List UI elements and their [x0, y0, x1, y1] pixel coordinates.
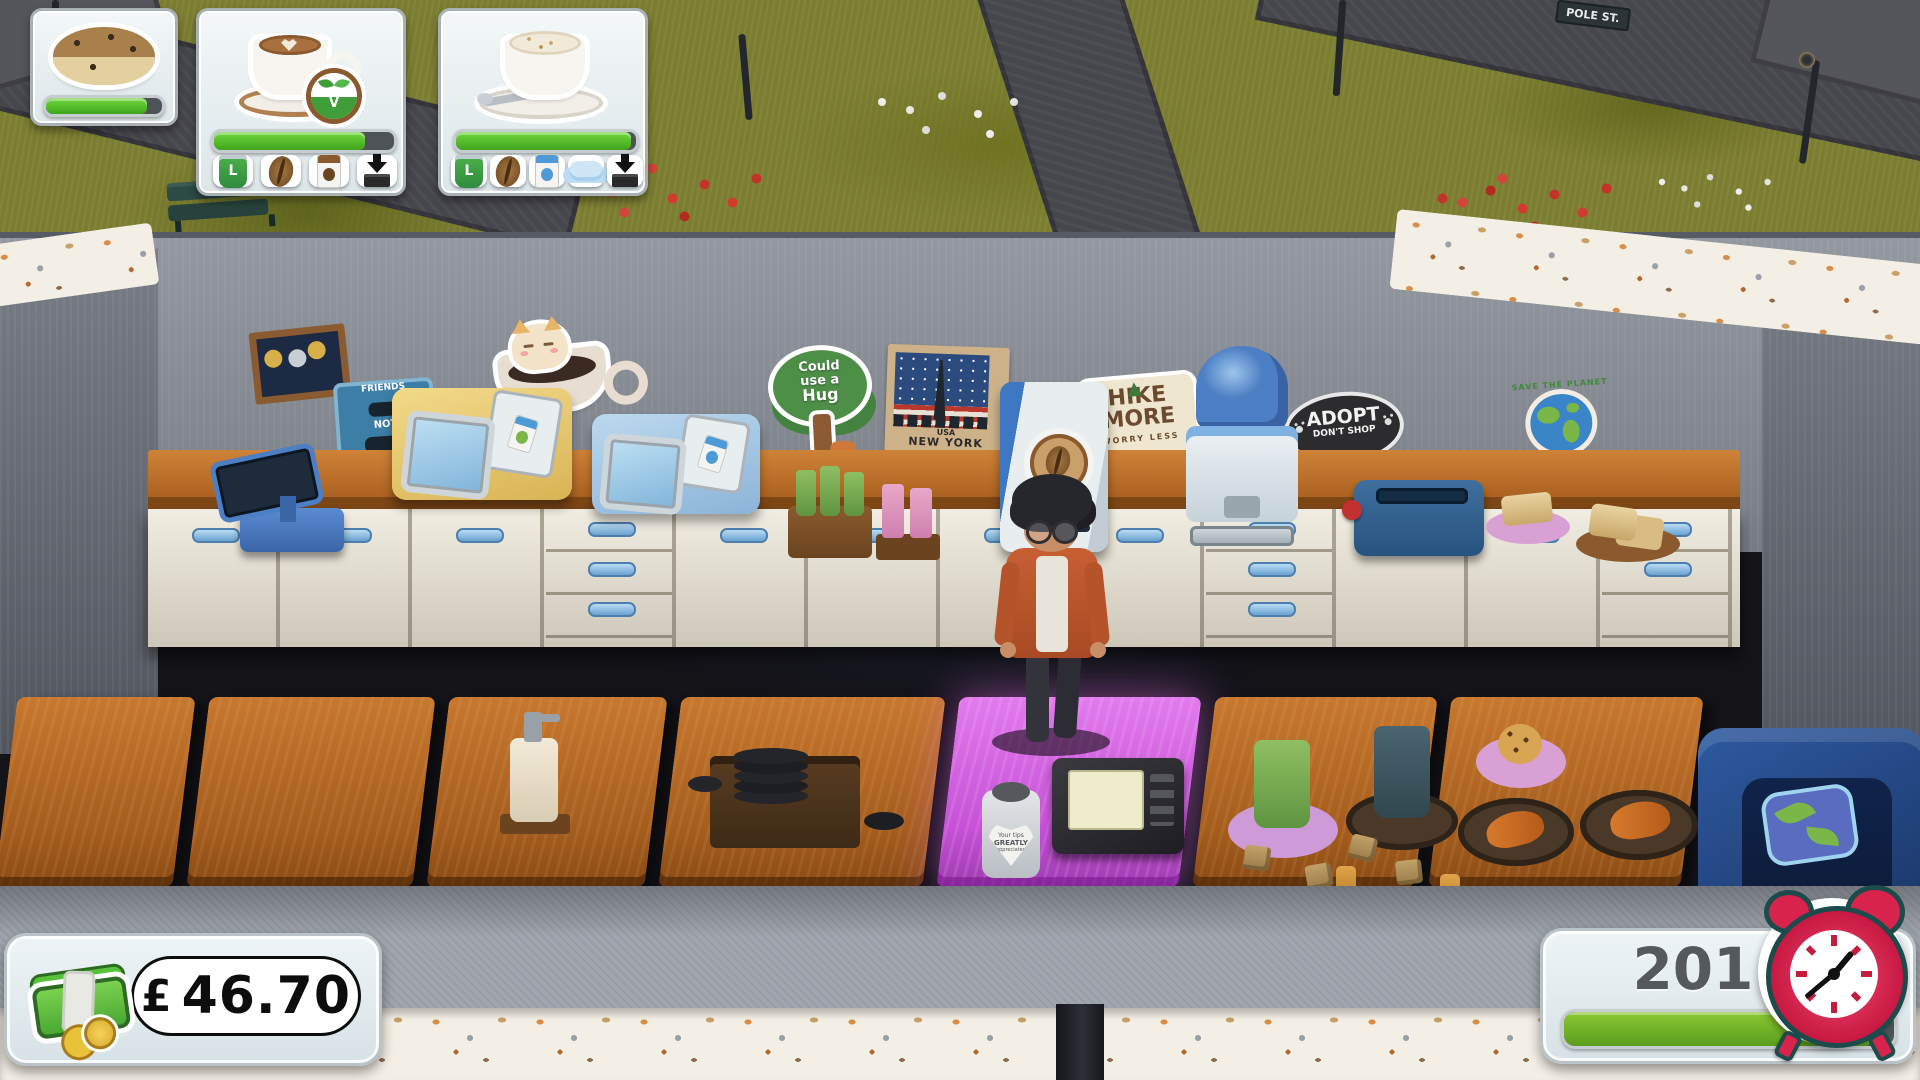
- hike-line2: MORE: [1102, 403, 1176, 434]
- lid-stack: [734, 748, 808, 764]
- flower-patch-right: [1438, 194, 1448, 204]
- fridge-window: [599, 433, 687, 516]
- fridge-window: [400, 410, 496, 501]
- loose-lid: [864, 812, 904, 830]
- lamp-head: [1799, 52, 1815, 68]
- ingredient-coffee-beans: [261, 155, 301, 187]
- drawer-handle: [1248, 602, 1296, 617]
- loose-lid: [688, 776, 722, 792]
- croissant-plate[interactable]: [1580, 778, 1698, 864]
- character-leg: [1053, 647, 1082, 738]
- compost-leaf-badge: [1759, 782, 1860, 868]
- bread-board[interactable]: [1576, 506, 1680, 564]
- game-screen: POLE ST. FRIENDS NOT FOOD Could use a Hu…: [0, 0, 1920, 1080]
- syrup-pump-bottle[interactable]: [498, 702, 572, 836]
- cup-size-letter: L: [229, 163, 238, 179]
- ingredient-milk: [529, 155, 565, 187]
- sandwich: [1501, 491, 1554, 526]
- ingredient-coffee-beans: [490, 155, 526, 187]
- character-hand: [1000, 642, 1016, 658]
- cabinet-handle: [1116, 528, 1164, 543]
- sugar-cube: [1242, 844, 1271, 871]
- globe: [1528, 392, 1594, 454]
- machine-arm: [280, 496, 296, 522]
- ingredient-milk-froth: [568, 155, 604, 187]
- ingredient-large-cup: L: [213, 155, 253, 187]
- pink-cups-rack[interactable]: [876, 478, 940, 564]
- dark-teal-cup: [1374, 726, 1430, 818]
- support-pole: [1056, 1004, 1104, 1080]
- clock-face: [1790, 930, 1878, 1018]
- leaf-icon: [318, 77, 334, 90]
- green-cup: [820, 466, 840, 516]
- money-sticker-icon: [17, 941, 140, 1055]
- order-progress-bar: [43, 95, 165, 117]
- daisy-patch-2: [1659, 179, 1665, 185]
- cabinet-handle: [456, 528, 504, 543]
- order-progress-bar: [211, 129, 397, 153]
- milk-bottle-icon: [507, 414, 540, 454]
- pink-cup: [882, 484, 904, 538]
- money-pill: £ 46.70: [131, 956, 361, 1036]
- lids-crate[interactable]: [688, 746, 908, 862]
- shop-left-wall: [0, 248, 158, 754]
- latte-image: V: [233, 21, 361, 121]
- barista-character: [984, 470, 1114, 760]
- toaster[interactable]: [1342, 470, 1484, 562]
- hug-tree-sticker: Could use a Hug: [765, 347, 883, 463]
- toaster-slots: [1376, 488, 1468, 504]
- croissant-plate[interactable]: [1458, 786, 1574, 870]
- order-progress-fill: [456, 132, 631, 150]
- milk-bottle-icon: [697, 434, 730, 474]
- crate-box: [710, 756, 860, 848]
- vegan-letter: V: [311, 97, 357, 110]
- currency-symbol: £: [141, 971, 172, 1022]
- group-head: [1224, 496, 1260, 518]
- drawer-handle: [588, 602, 636, 617]
- pink-cup: [910, 488, 932, 538]
- character-tee: [1036, 556, 1068, 652]
- scone-image: [53, 27, 155, 85]
- milk-fridge-yellow[interactable]: [392, 388, 572, 500]
- toaster-knob: [1342, 500, 1362, 520]
- character-glasses: [1026, 520, 1052, 544]
- money-display: £ 46.70: [4, 933, 382, 1066]
- bread-slices: [1588, 503, 1638, 541]
- green-cup: [1254, 740, 1310, 828]
- drawer-handle: [1644, 562, 1692, 577]
- pump-spout: [538, 714, 560, 722]
- order-card-1: [30, 8, 178, 126]
- sugar-cube: [1347, 833, 1378, 863]
- character-hand: [1090, 642, 1106, 658]
- order-card-3: L: [438, 8, 648, 196]
- clock-center: [1828, 968, 1840, 980]
- ingredient-oat-milk: [309, 155, 349, 187]
- glasses-bridge: [1048, 526, 1056, 529]
- cookie: [1498, 724, 1542, 764]
- bottle-body: [510, 738, 558, 822]
- order-card-2: V L: [196, 8, 406, 196]
- till-buttons: [1150, 774, 1174, 826]
- alarm-clock-icon: [1754, 890, 1914, 1054]
- card-reader-till[interactable]: [1052, 748, 1190, 864]
- new-york-poster: USA NEW YORK: [884, 344, 1010, 462]
- leaf-icon: [334, 77, 350, 90]
- cabinet-handle: [720, 528, 768, 543]
- sandwich-plate-pink[interactable]: [1486, 492, 1570, 548]
- cat-ear: [511, 318, 530, 334]
- leaf-icon: [1805, 827, 1840, 846]
- character-shadow: [992, 728, 1110, 756]
- coin-art: [263, 349, 283, 369]
- ingredient-tamp-press: [357, 155, 397, 187]
- tip-line1: Your tips: [988, 832, 1034, 839]
- drawer-handle: [588, 522, 636, 537]
- leaf-icon: [1774, 797, 1816, 830]
- foam-top: [509, 31, 581, 55]
- street-sign-label: POLE ST.: [1565, 6, 1620, 25]
- pine-tree-icon: [1127, 382, 1142, 397]
- drawer-handle: [588, 562, 636, 577]
- cat-ear: [543, 315, 562, 331]
- jar-opening: [992, 782, 1030, 802]
- character-leg: [1026, 650, 1049, 742]
- ingredient-large-cup: L: [451, 155, 487, 187]
- milk-fridge-blue[interactable]: [592, 414, 760, 514]
- vegan-badge: V: [311, 73, 357, 119]
- daisy-patch: [878, 98, 886, 106]
- till-screen: [1068, 770, 1144, 830]
- green-cup: [844, 472, 864, 516]
- ny-city: NEW YORK: [908, 435, 983, 451]
- green-cups-crate[interactable]: [788, 462, 872, 562]
- fridge-label-panel: [675, 413, 751, 494]
- order-progress-fill: [46, 98, 147, 114]
- order-progress-bar: [453, 129, 639, 153]
- character-hair: [1012, 474, 1092, 526]
- water-dome: [1196, 346, 1288, 430]
- ingredient-tamp-press: [607, 155, 643, 187]
- green-cup: [796, 470, 816, 516]
- order-progress-fill: [214, 132, 365, 150]
- drip-tray: [1190, 526, 1294, 546]
- money-amount: 46.70: [182, 966, 351, 1026]
- coffee-grinder-scale[interactable]: [214, 452, 370, 558]
- save-the-planet-sticker: SAVE THE PLANET: [1509, 377, 1614, 460]
- front-table-2[interactable]: [186, 697, 435, 887]
- cookie-plate[interactable]: [1476, 722, 1566, 792]
- cup-size-letter: L: [465, 163, 474, 179]
- sugar-cube: [1395, 859, 1423, 886]
- espresso-machine[interactable]: [1168, 346, 1316, 574]
- front-table-1[interactable]: [0, 697, 196, 887]
- spoon-bowl: [477, 93, 493, 105]
- cappuccino-image: [475, 19, 611, 121]
- tip-jar[interactable]: Your tips GREATLY appreciated: [980, 780, 1044, 884]
